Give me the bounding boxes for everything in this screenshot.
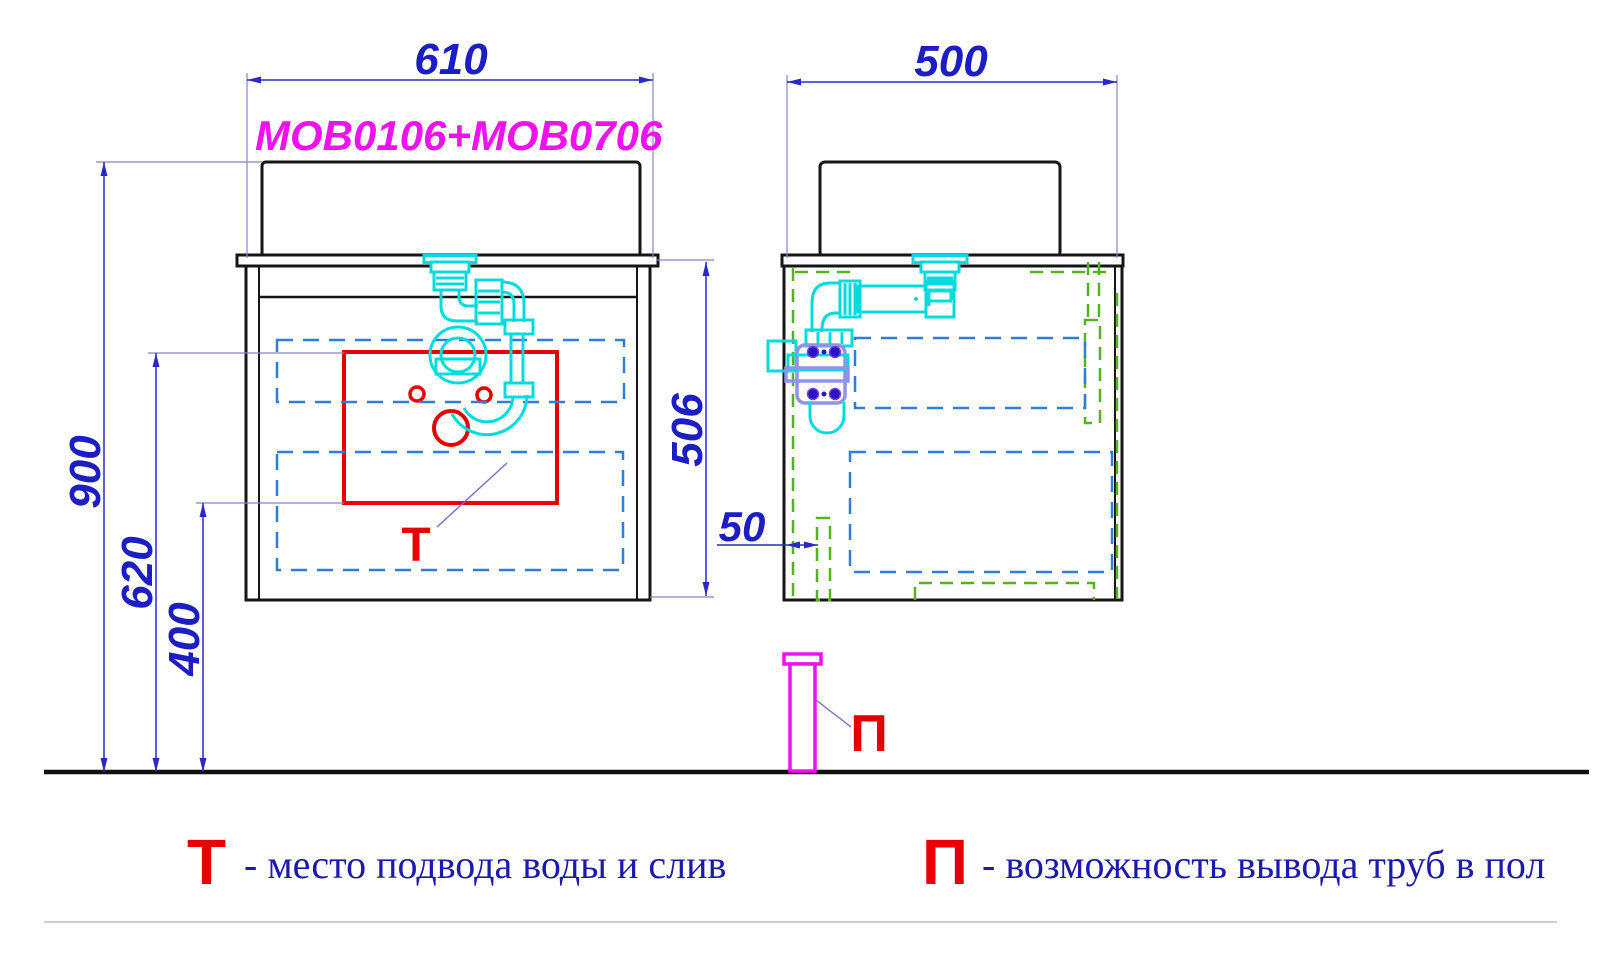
installation-drawing: Т xyxy=(0,0,1600,971)
legend-water-text: - место подвода воды и слив xyxy=(244,842,726,887)
dim-front-width: 610 xyxy=(414,35,488,84)
dim-drain-height: 400 xyxy=(160,602,209,677)
front-sink-basin xyxy=(262,162,640,257)
front-cabinet xyxy=(246,266,650,600)
dim-back-offset: 50 xyxy=(719,503,766,550)
front-view: Т xyxy=(237,162,658,600)
legend-floor-pipes-symbol: П xyxy=(922,826,968,898)
dim-cabinet-height: 506 xyxy=(663,393,712,467)
model-label: MOB0106+MOB0706 xyxy=(255,112,663,159)
dim-total-height: 900 xyxy=(61,435,110,509)
floor-pipe-body xyxy=(790,664,815,771)
legend-water-symbol: Т xyxy=(187,826,226,898)
dim-supply-height: 620 xyxy=(113,536,162,610)
dim-side-depth: 500 xyxy=(914,37,988,86)
floor-pipe: П xyxy=(784,654,888,771)
water-marker-label: Т xyxy=(401,519,430,572)
side-view xyxy=(768,162,1123,600)
side-sink-basin xyxy=(820,162,1060,257)
floor-pipe-label: П xyxy=(850,705,887,763)
legend: Т - место подвода воды и слив П - возмож… xyxy=(187,826,1545,898)
floor-pipe-leader xyxy=(816,700,851,727)
legend-floor-pipes-text: - возможность вывода труб в пол xyxy=(982,842,1545,887)
